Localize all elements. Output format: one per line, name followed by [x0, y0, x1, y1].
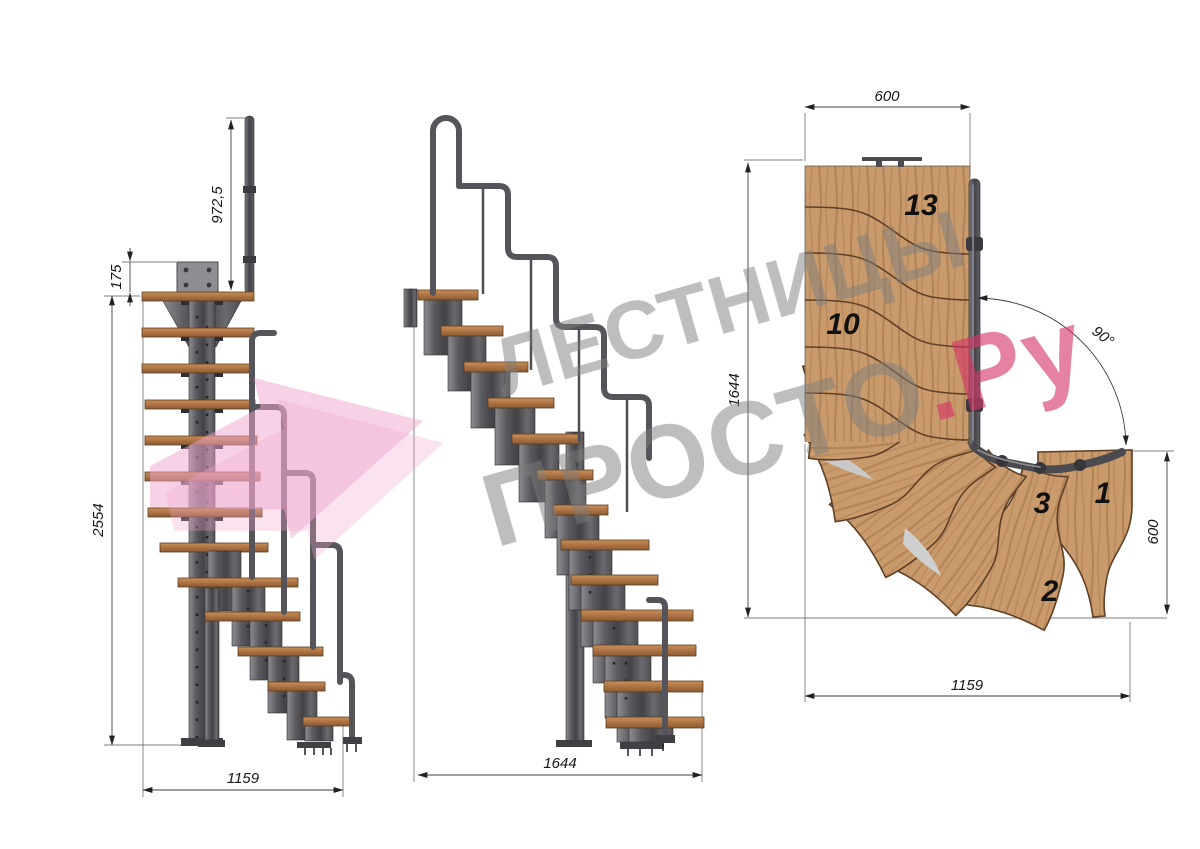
staircase-technical-drawing: 2554 175 972,5 1159 — [0, 0, 1200, 849]
top-bracket-tab — [876, 161, 882, 167]
dim-label-1644-front: 1644 — [543, 755, 576, 772]
dim-label-1159-side: 1159 — [227, 770, 260, 787]
dim-plate-offset: 175 — [108, 248, 130, 306]
drawing-layer: 2554 175 972,5 1159 — [0, 0, 1200, 849]
dim-label-972-5: 972,5 — [209, 186, 226, 224]
dim-plan-left-depth: 1644 — [726, 163, 748, 617]
dim-total-height: 2554 — [90, 296, 112, 745]
front-elevation-view: 1644 — [404, 118, 704, 782]
dim-label-90deg: 90° — [1089, 323, 1117, 350]
rail-joint — [1034, 462, 1046, 474]
top-bracket-tab — [898, 161, 904, 167]
plan-step-number-13: 13 — [904, 189, 938, 222]
post-collar — [243, 256, 256, 263]
handrail-loop — [433, 118, 459, 293]
dim-label-1644-plan: 1644 — [726, 373, 743, 406]
dim-label-2554: 2554 — [90, 503, 107, 537]
rail-foot — [343, 737, 362, 744]
plan-view: 13 10 3 1 2 600 1644 90° 600 1159 — [726, 88, 1174, 702]
dim-plan-right-width: 600 — [1145, 452, 1167, 614]
post-collar — [243, 186, 256, 193]
plan-step-number-2: 2 — [1041, 575, 1059, 608]
dim-label-600-top: 600 — [874, 88, 900, 105]
dim-label-1159-plan: 1159 — [951, 677, 984, 694]
plan-step-number-1: 1 — [1095, 477, 1112, 510]
top-bracket — [862, 157, 922, 161]
plan-step-number-10: 10 — [826, 308, 860, 341]
rail-joint — [966, 398, 983, 412]
rail-joint — [966, 237, 983, 251]
handrail-post — [245, 116, 254, 294]
module-feet — [620, 742, 664, 749]
wall-plate — [177, 262, 218, 292]
wall-bracket — [404, 289, 417, 327]
side-elevation-view: 2554 175 972,5 1159 — [90, 116, 362, 797]
rail-foot — [655, 735, 675, 743]
rail-highlight — [973, 185, 1040, 467]
dim-label-175: 175 — [108, 264, 125, 290]
dim-label-600-right: 600 — [1145, 519, 1162, 545]
column-base — [556, 740, 592, 747]
dim-side-run: 1159 — [143, 770, 343, 790]
dim-front-run: 1644 — [418, 755, 702, 775]
dim-turn-angle: 90° — [978, 298, 1126, 445]
step-modules — [424, 300, 673, 742]
dim-plan-bottom-run: 1159 — [805, 677, 1130, 696]
plan-step-number-3: 3 — [1034, 487, 1051, 520]
dim-plan-top-width: 600 — [805, 88, 970, 107]
rail-joint — [1074, 459, 1086, 471]
